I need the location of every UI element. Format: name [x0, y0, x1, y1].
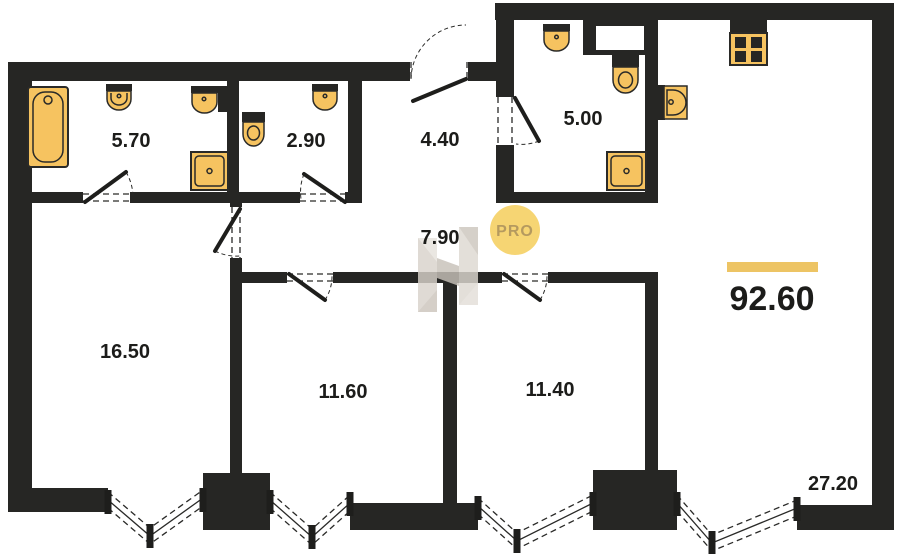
pro-badge: PRO	[490, 205, 540, 255]
washing-machine-icon	[191, 152, 228, 190]
sink-icon	[543, 24, 570, 51]
area-label-bathroom-2: 5.00	[564, 108, 603, 130]
washing-machine-icon	[607, 152, 646, 190]
total-area: 92.60	[727, 262, 818, 318]
total-area-underline	[727, 262, 818, 272]
door-swing-bedroom-3	[502, 274, 548, 300]
bay-window-4	[677, 492, 797, 554]
door-swing-entrance	[411, 25, 467, 101]
bay-window-2	[270, 490, 350, 549]
area-label-bedroom-1: 16.50	[100, 341, 150, 363]
area-label-entrance-hall: 4.40	[421, 129, 460, 151]
area-label-bedroom-2: 11.60	[319, 381, 368, 403]
toilet-icon	[612, 55, 639, 93]
bay-window-1	[108, 488, 203, 548]
sink-icon	[191, 86, 231, 113]
door-swing-bedroom-1	[215, 207, 240, 258]
area-label-kitchen-living: 27.20	[808, 473, 858, 495]
floor-plan-svg: PRO 5.70 2.90 4.40 5.00 7.90 16.50 11.60…	[0, 0, 900, 554]
area-label-wc: 2.90	[287, 130, 326, 152]
floor-plan-page: PRO 5.70 2.90 4.40 5.00 7.90 16.50 11.60…	[0, 0, 900, 554]
area-label-bedroom-3: 11.40	[526, 379, 575, 401]
door-swing-wc	[300, 174, 345, 202]
pro-badge-label: PRO	[496, 223, 534, 240]
toilet-icon	[242, 112, 265, 146]
bathtub-icon	[28, 87, 68, 167]
total-area-label: 92.60	[729, 280, 814, 318]
stove-icon	[730, 20, 767, 65]
door-swing-bedroom-2	[287, 274, 333, 300]
sink-icon	[312, 84, 338, 110]
kitchen-sink-icon	[658, 85, 687, 120]
area-label-corridor: 7.90	[421, 227, 460, 249]
area-label-bathroom-1: 5.70	[112, 130, 151, 152]
door-swing-bathroom-2	[498, 97, 539, 145]
door-swing-bathroom-1	[83, 172, 133, 202]
sink-icon	[106, 84, 132, 110]
bay-window-3	[478, 492, 593, 553]
